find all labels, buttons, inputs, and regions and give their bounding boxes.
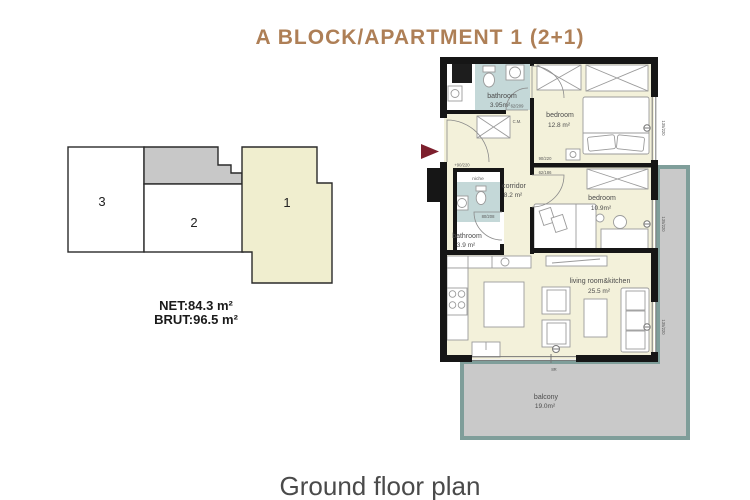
entrance-arrow-icon	[421, 144, 439, 159]
bedroom2-bed	[534, 204, 596, 250]
wardrobe-label: C.M.	[513, 119, 522, 124]
bedroom1-name: bedroom	[546, 112, 574, 119]
brut-area-label: BRUT:96.5 m²	[154, 313, 238, 327]
page-title: A BLOCK/APARTMENT 1 (2+1)	[256, 26, 585, 50]
bedroom2-door-label: 62/186	[539, 170, 552, 175]
unit-1-label: 1	[283, 195, 290, 210]
living-name: living room&kitchen	[570, 278, 631, 285]
dining-set	[484, 282, 524, 327]
area-summary: NET:84.3 m² BRUT:96.5 m²	[154, 299, 238, 327]
balcony-door-label: 8R	[551, 367, 556, 372]
bedroom2-name: bedroom	[588, 195, 616, 202]
window-label-2: 135/220	[661, 216, 666, 232]
apartment-plan: balcony 19.0m²	[395, 50, 710, 450]
bedroom2-wardrobe	[587, 169, 648, 189]
key-plan-gray-block	[144, 147, 242, 184]
balcony-name: balcony	[534, 394, 559, 401]
floor-plan-page: A BLOCK/APARTMENT 1 (2+1) 3 2 1 NET:84.3…	[0, 0, 750, 500]
key-plan-unit-1	[242, 147, 332, 283]
key-plan: 3 2 1	[60, 140, 340, 290]
corridor-name: corridor	[502, 183, 526, 190]
niche-label: niche	[472, 176, 484, 182]
unit-2-label: 2	[190, 215, 197, 230]
window-label-1: 135/220	[661, 120, 666, 136]
bathroom-small-area: 3.9 m²	[457, 242, 476, 249]
bedroom1-wardrobes	[537, 65, 648, 91]
bathroom-top-area: 3.95m²	[490, 102, 511, 109]
net-area-label: NET:84.3 m²	[154, 299, 238, 313]
bathroom-top-door-label: 62/209	[511, 104, 524, 109]
bedroom2-area: 10.9m²	[591, 205, 612, 212]
key-plan-unit-3	[68, 147, 144, 252]
living-area: 25.5 m²	[588, 288, 611, 295]
bedroom1-door-label: 90/220	[539, 156, 552, 161]
balcony-area: 19.0m²	[535, 403, 556, 410]
unit-3-label: 3	[98, 194, 105, 209]
bathroom-small-name: bathroom	[452, 233, 482, 240]
bathroom-small-door-label: 80/208	[482, 214, 495, 219]
corridor-area: 8.2 m²	[504, 192, 523, 199]
bedroom1-area: 12.8 m²	[548, 122, 571, 129]
entrance-door-label: +90/220	[454, 163, 470, 168]
plan-caption: Ground floor plan	[280, 471, 481, 500]
hall-wardrobe	[477, 116, 510, 138]
bathroom-top-name: bathroom	[487, 93, 517, 100]
window-label-3: 135/220	[661, 319, 666, 335]
